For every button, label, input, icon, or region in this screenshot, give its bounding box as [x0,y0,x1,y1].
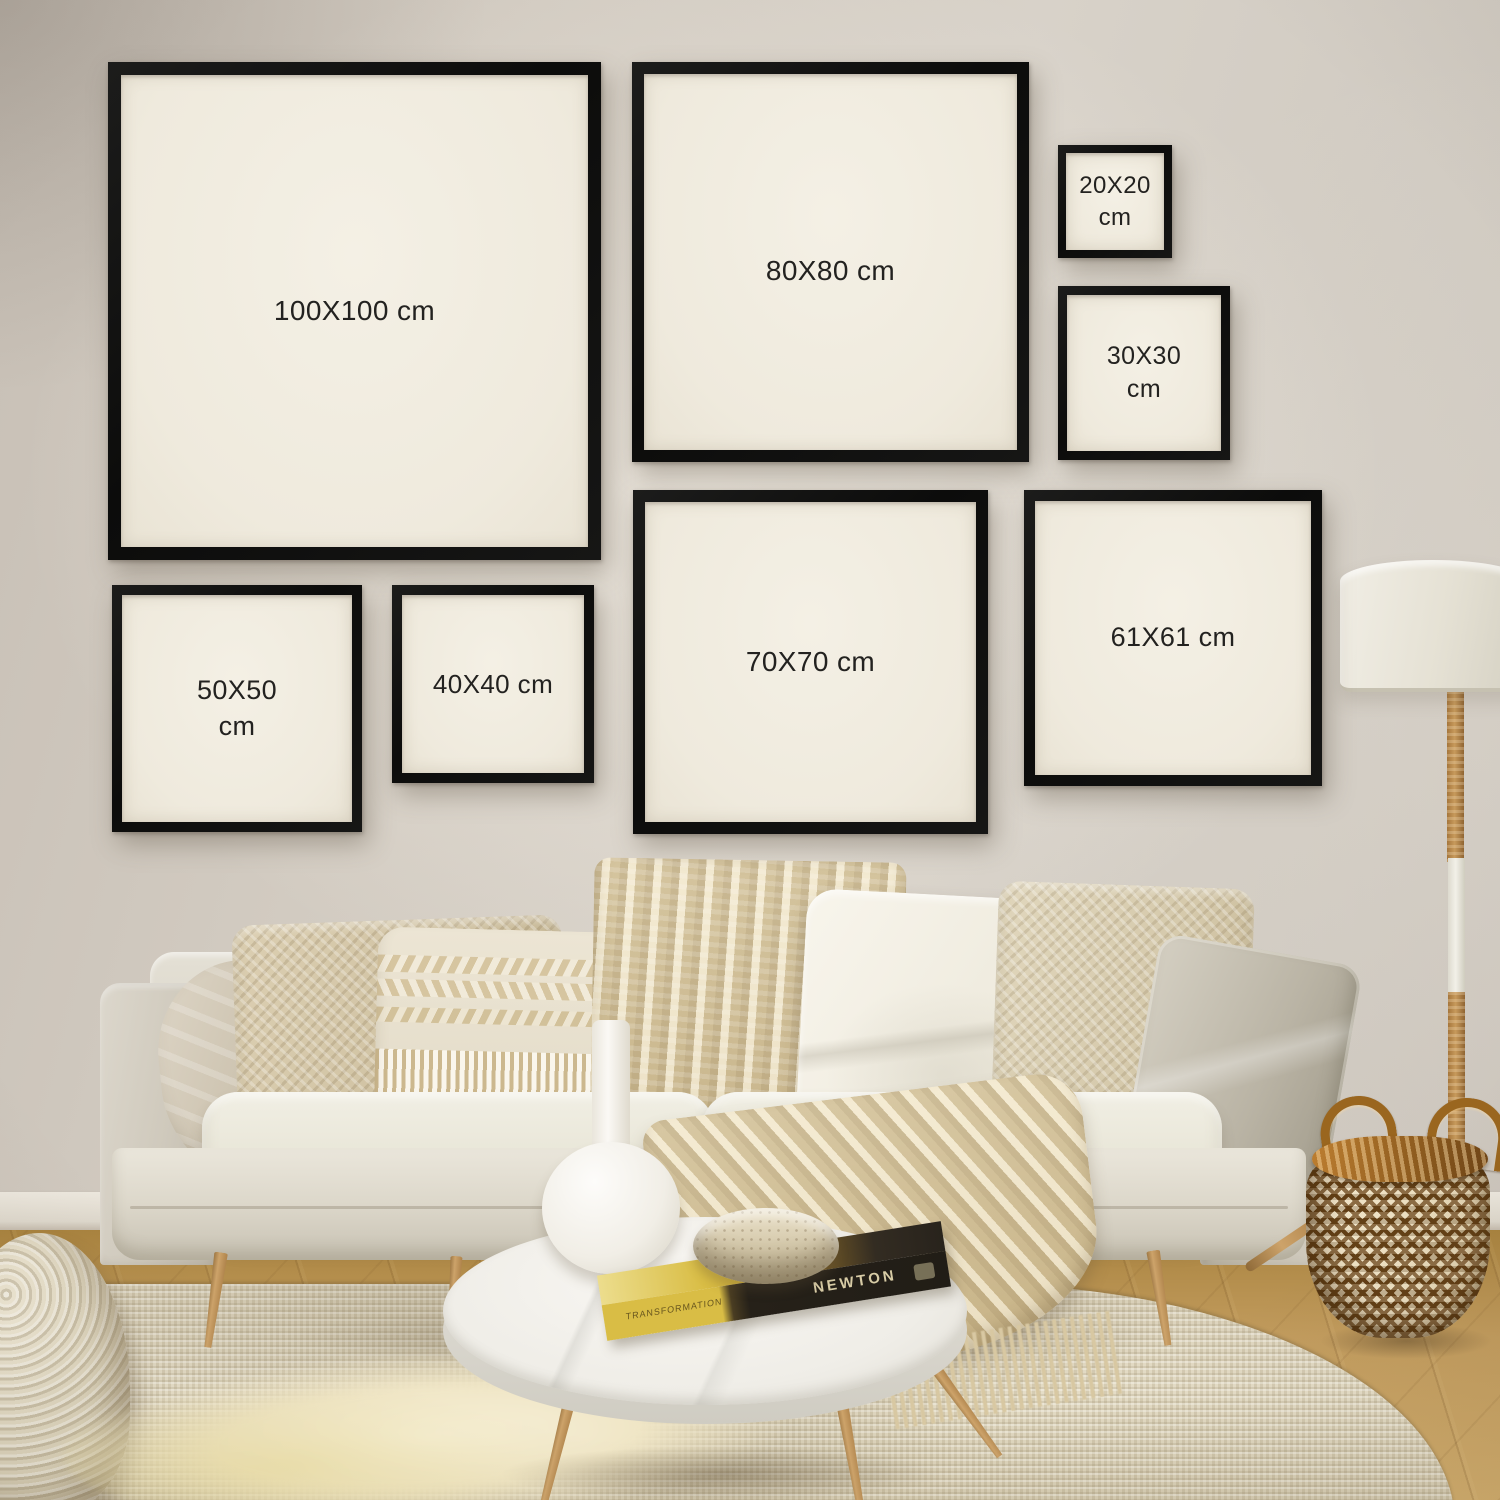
frame-size-label: 70X70 cm [633,490,988,834]
size-frame-61x61: 61X61 cm [1024,490,1322,786]
ceramic-bowl [693,1208,839,1284]
frame-size-label: 20X20 cm [1058,145,1172,258]
frame-size-label: 50X50 cm [112,585,362,832]
frame-size-label: 61X61 cm [1024,490,1322,786]
lamp-pole-upper [1447,686,1464,862]
basket-rim [1312,1136,1488,1182]
book-publisher-logo [913,1262,935,1281]
size-frame-40x40: 40X40 cm [392,585,594,783]
white-vase [542,1142,680,1274]
size-frame-80x80: 80X80 cm [632,62,1029,462]
size-frame-70x70: 70X70 cm [633,490,988,834]
lamp-pole-white-band [1448,858,1465,995]
living-room-scene: TRANSFORMATION NEWTON 100X100 cm 80X80 c… [0,0,1500,1500]
frame-size-label: 100X100 cm [108,62,601,560]
table-shadow [438,1438,1008,1500]
size-frame-100x100: 100X100 cm [108,62,601,560]
frame-size-label: 30X30 cm [1058,286,1230,460]
size-frame-20x20: 20X20 cm [1058,145,1172,258]
frame-size-label: 80X80 cm [632,62,1029,462]
floor-lamp-shade [1340,560,1500,692]
size-frame-50x50: 50X50 cm [112,585,362,832]
size-frame-30x30: 30X30 cm [1058,286,1230,460]
frame-size-label: 40X40 cm [392,585,594,783]
